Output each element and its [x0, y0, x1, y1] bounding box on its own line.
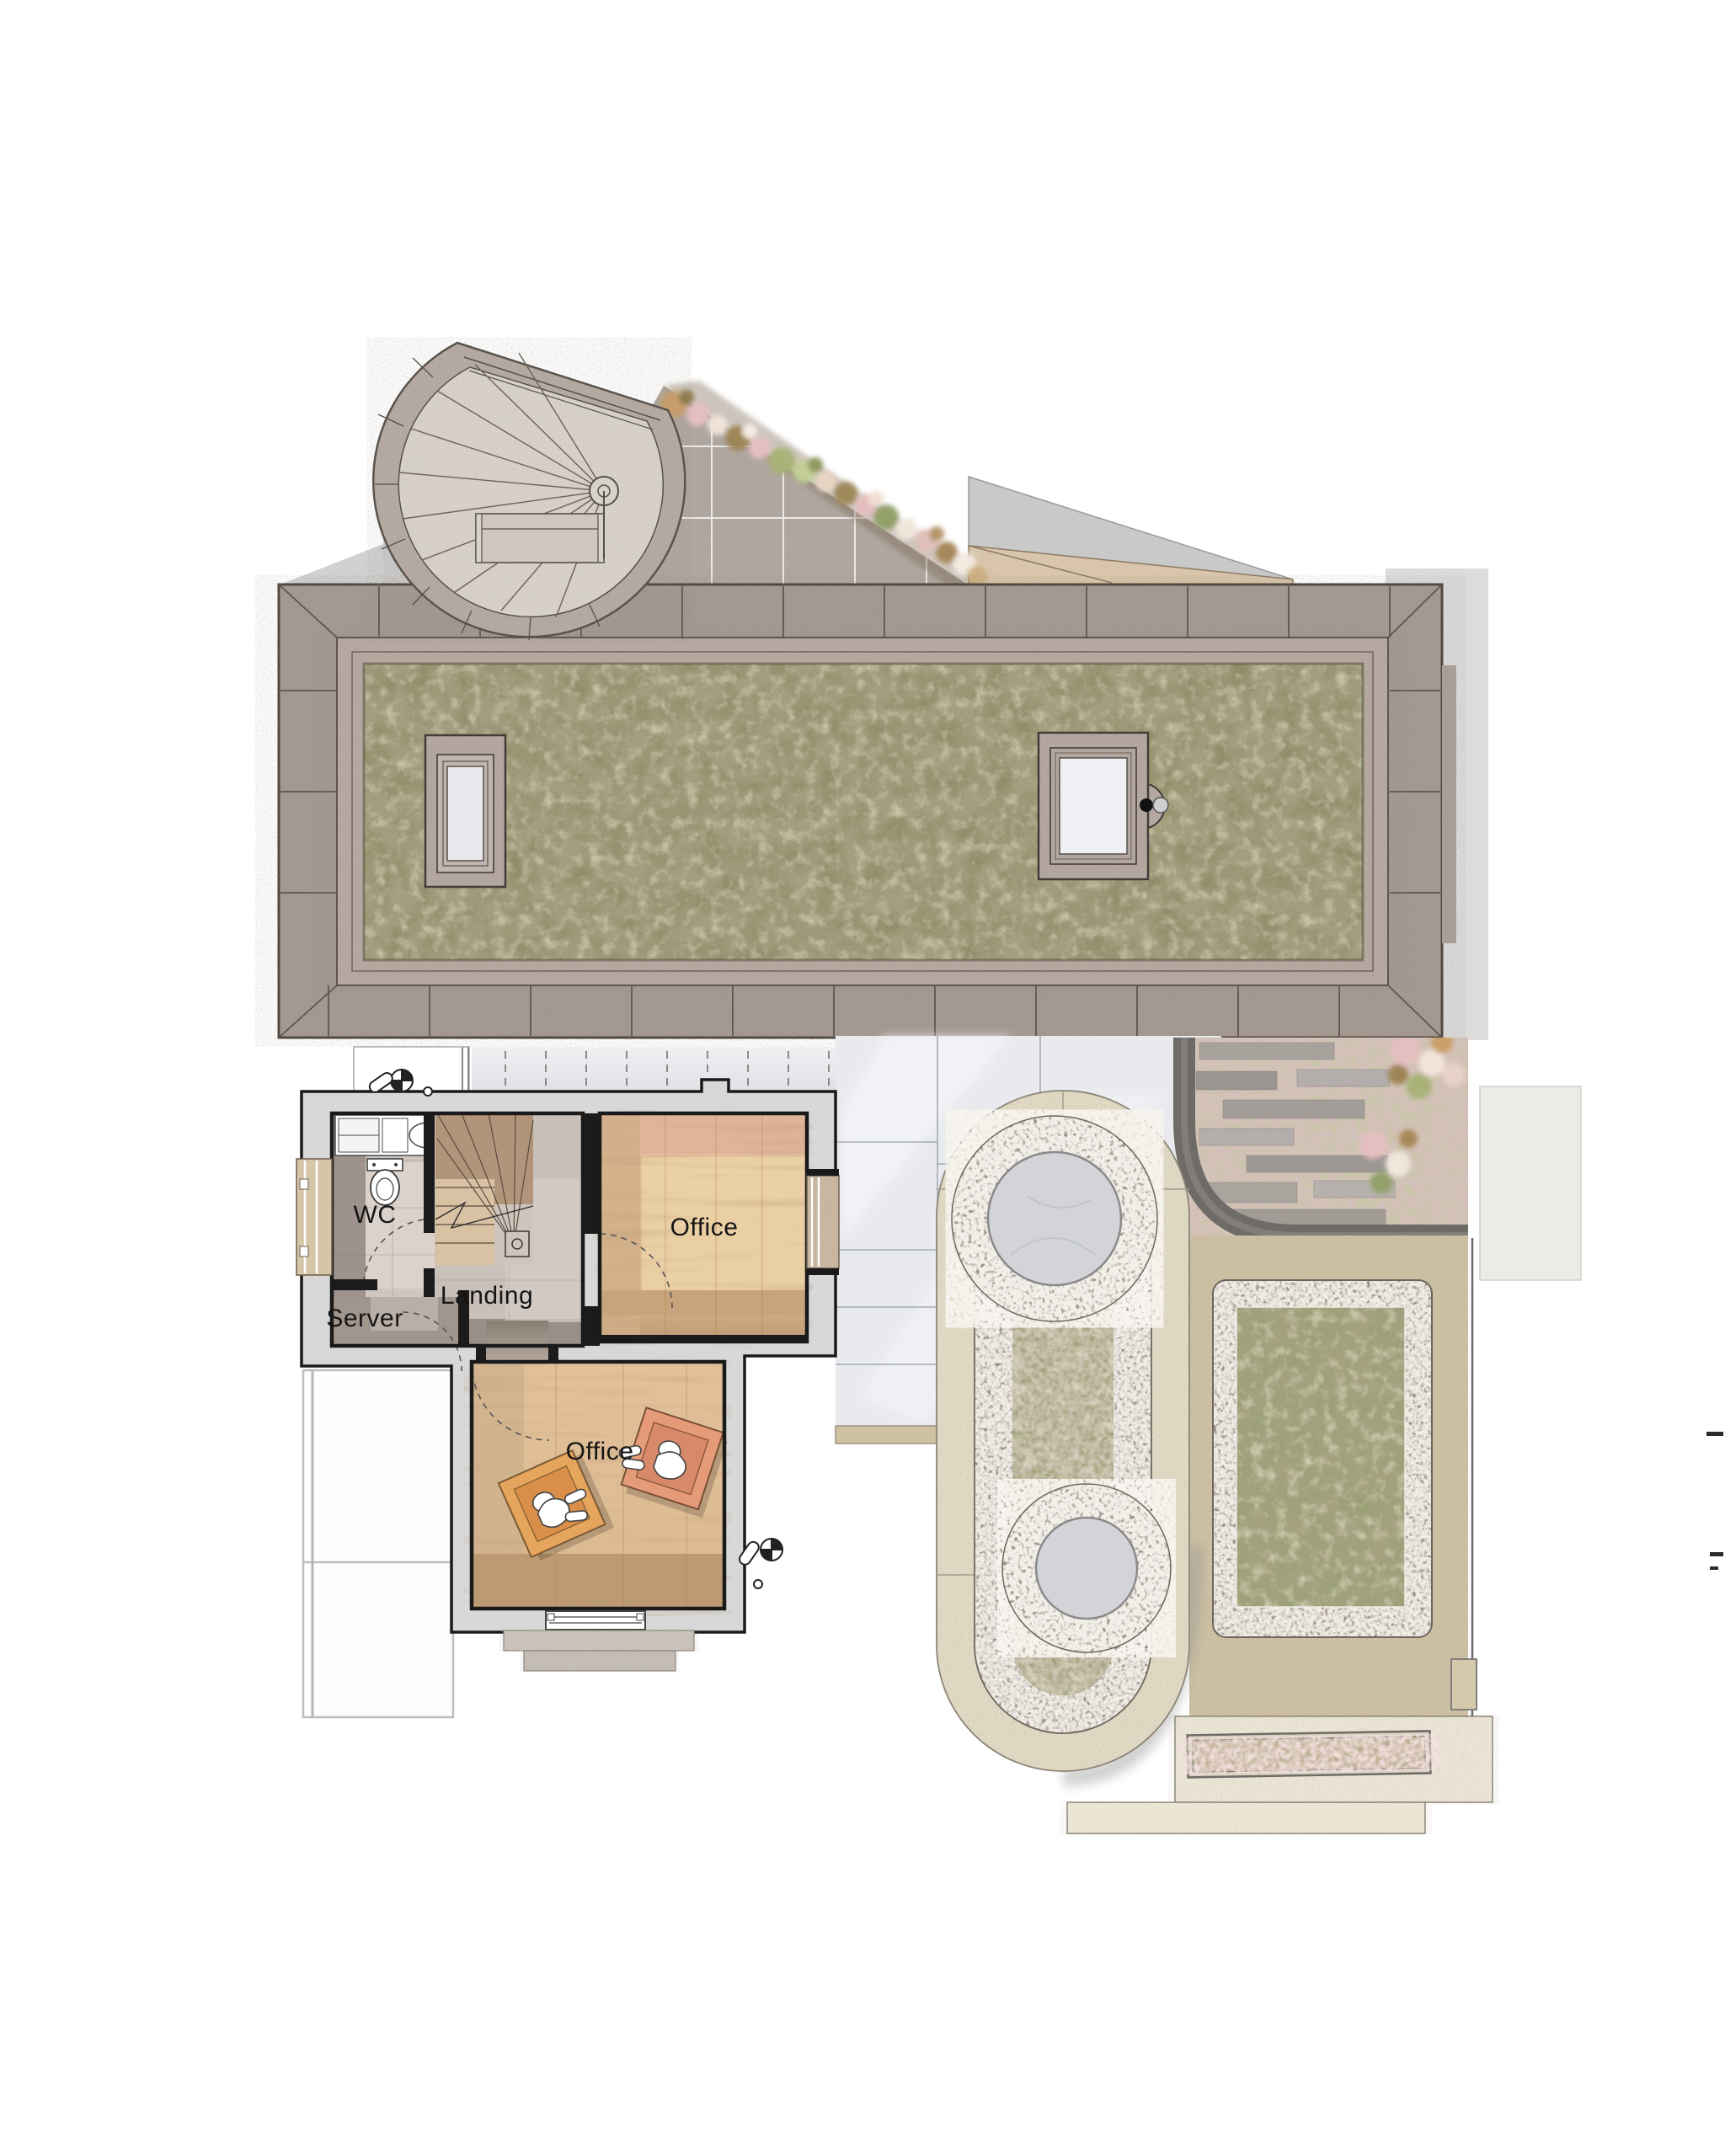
window-left — [296, 1159, 332, 1275]
window-right — [807, 1169, 839, 1275]
lower-level-outline — [303, 1370, 453, 1717]
terrace-tan-step — [836, 1426, 937, 1444]
east-extension-paving — [1480, 1086, 1581, 1280]
roof-edge-strip — [1442, 665, 1456, 943]
roof-skylight-left — [425, 735, 505, 887]
vent-outlet — [1140, 798, 1153, 812]
edge-tick — [1710, 1566, 1718, 1570]
room-office-lower — [472, 1362, 729, 1609]
green-roof-block — [279, 584, 1456, 1038]
upper-grid-paving — [581, 371, 1293, 595]
entrance-steps — [504, 1630, 694, 1671]
room-label-landing: Landing — [441, 1282, 533, 1310]
architectural-plan-drawing — [0, 0, 1725, 2156]
room-label-wc: WC — [354, 1201, 397, 1230]
stone-circle-upper — [952, 1116, 1157, 1321]
edge-tick — [1706, 1432, 1723, 1436]
rectangular-planting-bed — [1213, 1280, 1432, 1637]
skylight-glass — [1060, 758, 1127, 854]
stone-circle-lower — [1002, 1484, 1171, 1652]
oval-planting-bed — [937, 1091, 1194, 1777]
landing-stair — [435, 1113, 533, 1265]
skylight-glass — [447, 766, 483, 861]
edge-tick — [1710, 1552, 1723, 1556]
window-bottom — [546, 1611, 645, 1630]
roof-skylight-right — [1039, 733, 1168, 879]
sedum-roof-field — [364, 664, 1363, 960]
room-label-server: Server — [326, 1305, 403, 1333]
garden-step — [1451, 1659, 1477, 1710]
slope-garden-steps — [1184, 1032, 1470, 1240]
room-label-office-upper: Office — [670, 1214, 739, 1242]
site-plan-canvas: WC Landing Server Office Office — [0, 0, 1725, 2156]
room-label-office-lower: Office — [566, 1438, 634, 1466]
stair-bottom-landing — [476, 514, 604, 563]
planter-strip — [1188, 1731, 1431, 1777]
